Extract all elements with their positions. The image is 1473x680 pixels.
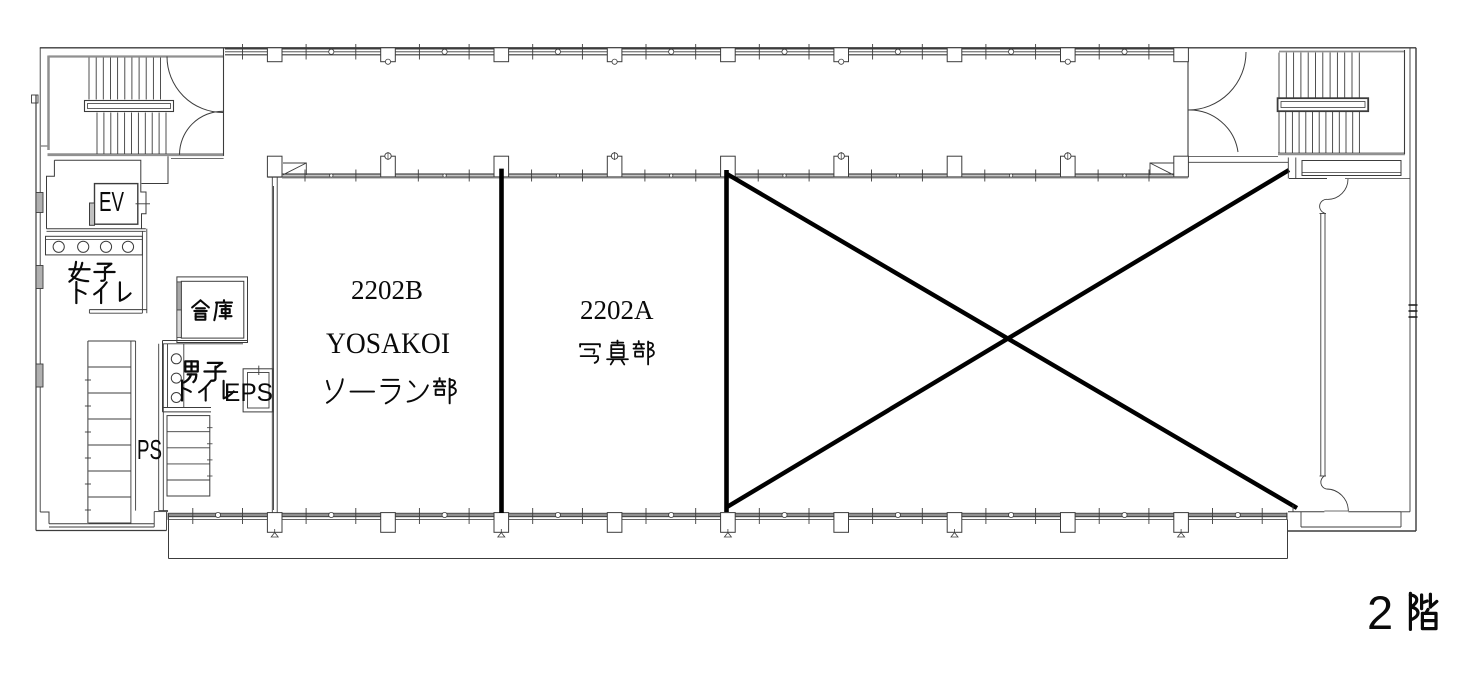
svg-text:PS: PS	[137, 434, 162, 465]
svg-text:2: 2	[1367, 586, 1393, 639]
svg-text:EV: EV	[99, 186, 124, 217]
svg-text:2202B: 2202B	[351, 275, 423, 305]
svg-text:YOSAKOI: YOSAKOI	[326, 327, 450, 360]
svg-text:EPS: EPS	[224, 379, 273, 407]
svg-text:2202A: 2202A	[580, 295, 654, 325]
